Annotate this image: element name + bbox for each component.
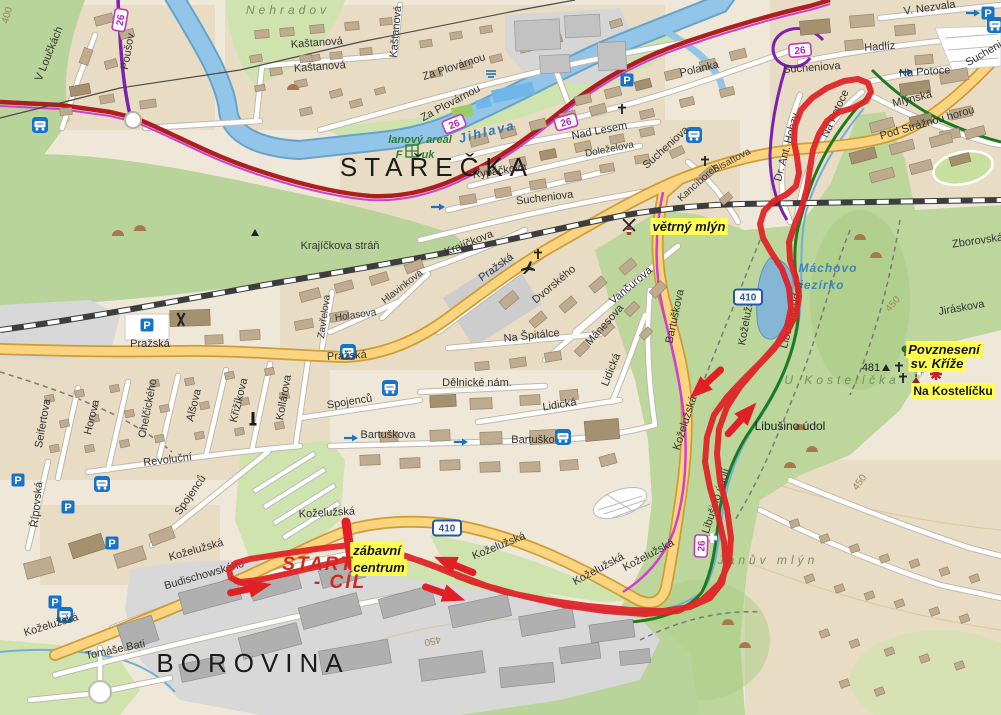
parking-icon[interactable]: P bbox=[141, 319, 154, 333]
map-label: - CÍL bbox=[314, 571, 366, 593]
map-label: sv. Kříže bbox=[911, 356, 964, 371]
svg-text:P: P bbox=[623, 75, 630, 87]
bus-icon[interactable] bbox=[94, 476, 110, 492]
building bbox=[360, 455, 380, 466]
building bbox=[330, 51, 343, 59]
building bbox=[170, 309, 211, 326]
building bbox=[619, 648, 650, 665]
building bbox=[274, 421, 284, 430]
building bbox=[119, 439, 129, 448]
svg-text:P: P bbox=[143, 320, 150, 332]
building bbox=[560, 459, 579, 471]
svg-text:P: P bbox=[984, 8, 991, 20]
building bbox=[509, 357, 526, 368]
bus-icon[interactable] bbox=[32, 117, 48, 133]
map-label: U Kostelíčka bbox=[784, 373, 899, 387]
building bbox=[430, 394, 457, 407]
svg-text:26: 26 bbox=[696, 540, 707, 552]
base-map: PPPPPPP STAŘEČKABOROVINAJihlavaMáchovoje… bbox=[0, 0, 1001, 715]
cycle-route-badge: 26 bbox=[694, 535, 708, 557]
svg-text:P: P bbox=[14, 475, 21, 487]
map-label: Pražská bbox=[130, 338, 171, 350]
building bbox=[564, 14, 600, 38]
building bbox=[514, 19, 561, 51]
map-label: BOROVINA bbox=[156, 648, 349, 678]
map-label: větrný mlýn bbox=[653, 219, 726, 234]
building bbox=[430, 430, 450, 442]
building bbox=[915, 54, 934, 65]
map-label: Krajíčkova stráň bbox=[301, 240, 380, 252]
building bbox=[597, 41, 626, 70]
roundabout bbox=[89, 681, 111, 703]
building bbox=[109, 384, 119, 393]
building bbox=[59, 419, 69, 428]
map-label: Libušino údol bbox=[755, 419, 826, 433]
building bbox=[345, 21, 360, 30]
building bbox=[799, 19, 830, 36]
map-label: Pražská bbox=[327, 349, 368, 363]
building bbox=[895, 24, 916, 36]
building bbox=[520, 394, 540, 405]
building bbox=[845, 39, 864, 51]
bus-icon[interactable] bbox=[382, 380, 398, 396]
parking-icon[interactable]: P bbox=[49, 596, 62, 610]
building bbox=[400, 458, 420, 469]
svg-text:26: 26 bbox=[794, 45, 806, 57]
building bbox=[520, 462, 540, 473]
parking-icon[interactable]: P bbox=[62, 501, 75, 515]
building bbox=[540, 54, 571, 74]
map-label: uk bbox=[422, 149, 436, 161]
map-label: 481 bbox=[862, 362, 880, 374]
building bbox=[124, 409, 134, 418]
building bbox=[224, 371, 234, 380]
building bbox=[60, 107, 73, 115]
building bbox=[255, 29, 270, 38]
cycle-route-badge: 26 bbox=[788, 43, 811, 58]
building bbox=[360, 47, 373, 55]
parking-icon[interactable]: P bbox=[12, 474, 25, 488]
map-label: Dělnické nám. bbox=[442, 377, 512, 389]
building bbox=[310, 24, 325, 33]
road-number-badge: 410 bbox=[734, 290, 762, 305]
building bbox=[240, 329, 260, 340]
parking-icon[interactable]: P bbox=[982, 7, 995, 21]
building bbox=[194, 431, 204, 440]
road-number-badge: 410 bbox=[433, 521, 461, 536]
svg-text:410: 410 bbox=[439, 524, 456, 535]
building bbox=[480, 462, 500, 473]
map-label: Bartuškova bbox=[360, 429, 416, 441]
map-label: lanový areál bbox=[388, 134, 453, 146]
parking-icon[interactable]: P bbox=[106, 537, 119, 551]
building bbox=[255, 84, 266, 92]
map-label: Hadlíz bbox=[864, 40, 896, 54]
building bbox=[584, 419, 620, 442]
map-label: zábavní bbox=[352, 543, 402, 558]
bus-icon[interactable] bbox=[555, 429, 571, 445]
cycle-route-badge: 26 bbox=[112, 8, 129, 32]
building bbox=[205, 335, 223, 345]
building bbox=[480, 432, 502, 445]
svg-text:P: P bbox=[64, 502, 71, 514]
svg-text:P: P bbox=[51, 597, 58, 609]
map-label: Nehradov bbox=[246, 3, 330, 17]
building bbox=[140, 99, 157, 109]
map-label: F bbox=[396, 149, 403, 161]
building bbox=[74, 389, 84, 398]
building bbox=[440, 460, 460, 471]
map-label: Máchovo bbox=[798, 261, 857, 275]
building bbox=[234, 427, 244, 436]
parking-icon[interactable]: P bbox=[621, 74, 634, 88]
map-label: Bartuško bbox=[511, 434, 554, 446]
building bbox=[850, 14, 875, 28]
building bbox=[264, 367, 274, 376]
building bbox=[470, 398, 492, 410]
building bbox=[280, 27, 295, 36]
building bbox=[184, 377, 194, 386]
map-label: Na Kostelíčku bbox=[913, 384, 992, 398]
building bbox=[49, 444, 59, 453]
building bbox=[475, 361, 490, 370]
map-label: Povznesení bbox=[908, 342, 981, 357]
map-viewport[interactable]: PPPPPPP STAŘEČKABOROVINAJihlavaMáchovoje… bbox=[0, 0, 1001, 715]
building bbox=[84, 444, 94, 453]
building bbox=[154, 434, 164, 443]
building bbox=[420, 39, 433, 48]
svg-text:P: P bbox=[108, 538, 115, 550]
building bbox=[159, 404, 169, 413]
svg-text:410: 410 bbox=[740, 293, 757, 304]
